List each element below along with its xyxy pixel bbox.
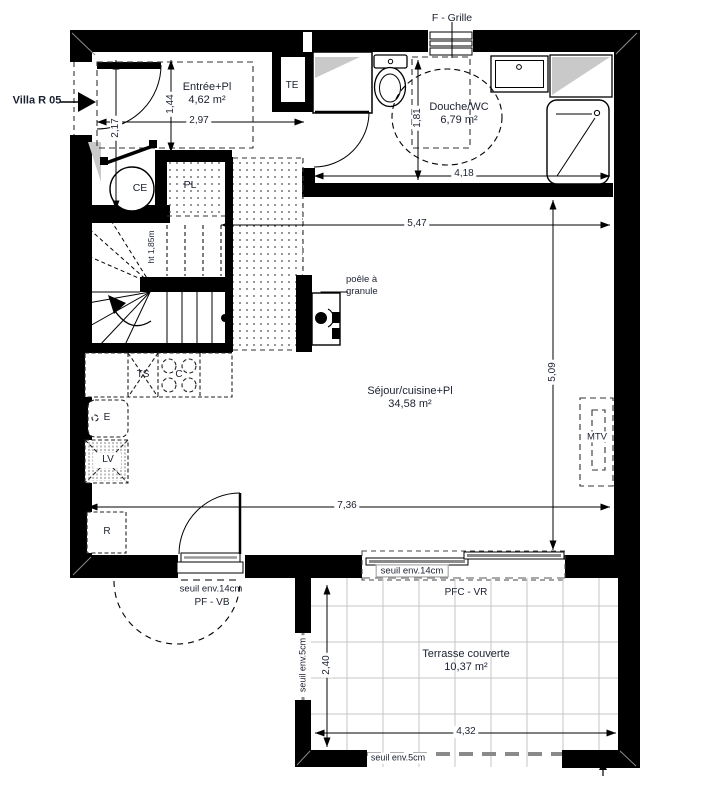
room-label-douche: Douche/WC 6,79 m² [429,101,488,127]
grille-vent [430,22,472,58]
kitchen-ts-label: TS [137,369,150,381]
ce-label: CE [133,182,148,194]
villa-label: Villa R 05 [13,95,62,108]
room-label-sejour: Séjour/cuisine+Pl 34,58 m² [367,385,452,411]
dim-entree-depth: 1,44 [165,91,177,116]
dim-bath-width: 4,18 [451,168,476,180]
kitchen-r-label: R [103,526,110,538]
stair-height-label: ht 1,85m [146,230,156,263]
te-label: TE [286,80,299,92]
dim-bath-depth: 1,81 [412,105,424,130]
ce-closet-door [100,140,157,165]
dim-entree-width: 2,97 [186,115,211,127]
bay-type-label: PFC - VR [445,587,488,599]
dim-entry-side: 2,17 [110,115,122,140]
kitchen-c-label: C [175,369,182,381]
dim-terrace-depth: 2,40 [321,652,333,677]
room-name: Douche/WC [429,101,488,114]
dim-sejour-width: 7,36 [334,500,359,512]
bay-sill-label: seuil env.14cm [376,564,449,577]
room-area: 10,37 m² [422,661,509,674]
floor-plan-drawing [0,0,716,800]
kitchen-fixtures [85,353,232,553]
room-area: 6,79 m² [429,114,488,127]
stove-label: poêle à granule [346,274,404,297]
room-label-terrasse: Terrasse couverte 10,37 m² [422,648,509,674]
room-label-entree: Entrée+Pl 4,62 m² [183,81,232,107]
floor-plan: Villa R 05 F - Grille Entrée+Pl 4,62 m² … [0,0,716,800]
kitchen-e-label: E [104,412,111,424]
terrace-sill-left-label: seuil env.5cm [298,635,309,695]
room-name: Terrasse couverte [422,648,509,661]
grille-label: F - Grille [432,12,472,24]
room-area: 34,58 m² [367,398,452,411]
door-type-label: PF - VB [194,597,229,609]
door-sill-label: seuil env.14cm [180,583,243,594]
terrace-sill-bottom-label: seuil env.5cm [368,753,428,764]
pellet-stove [312,292,348,345]
entrance-arrow-icon [60,92,96,112]
bathroom-door [314,112,369,167]
room-area: 4,62 m² [183,94,232,107]
pl-label: PL [184,179,197,191]
kitchen-lv-label: LV [102,454,114,466]
dim-sejour-top: 5,47 [404,218,429,230]
room-name: Entrée+Pl [183,81,232,94]
dim-terrace-width: 4,32 [453,726,478,738]
mtv-label: MTV [584,431,610,442]
dim-sejour-height: 5,09 [547,359,559,384]
room-name: Séjour/cuisine+Pl [367,385,452,398]
